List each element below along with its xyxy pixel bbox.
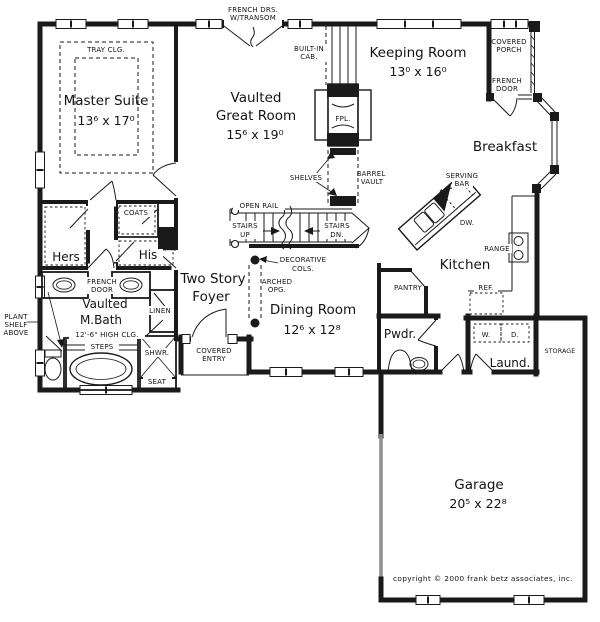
covered-entry-label-2: ENTRY [202, 355, 226, 363]
room-label-his: His [139, 248, 158, 262]
washer-label: W. [482, 331, 491, 339]
steps-label: STEPS [91, 343, 114, 351]
porch-french-door-label: FRENCH [492, 77, 522, 85]
room-label-kitchen: Kitchen [440, 257, 491, 273]
coats-label: COATS [124, 209, 149, 217]
shelf-lower [330, 196, 356, 206]
room-label-great-room-2: Great Room [216, 108, 296, 124]
room-label-mbath: Vaulted [82, 297, 127, 311]
room-label-powder: Pwdr. [384, 327, 416, 341]
newel-post [232, 241, 239, 248]
copyright-text: copyright © 2000 frank betz associates, … [393, 574, 573, 583]
built-in-cab-label-2: CAB. [300, 53, 318, 61]
shelf-upper [330, 148, 356, 155]
stairs-down-label: STAIRS [324, 222, 350, 230]
dishwasher-label: DW. [460, 219, 474, 227]
room-label-garage: Garage [454, 477, 503, 493]
serving-bar-label: SERVING [446, 172, 478, 180]
decorative-cols-label: DECORATIVE [280, 256, 327, 264]
decorative-cols-label-2: COLS. [292, 265, 314, 273]
shower-label: SHWR. [145, 349, 169, 357]
fireplace-label: FPL. [335, 115, 350, 123]
room-dims-dining: 12⁶ x 12⁸ [283, 322, 340, 337]
arched-opening-label-2: OPG. [268, 286, 286, 294]
room-label-master-suite: Master Suite [64, 93, 149, 109]
covered-porch-label-2: PORCH [496, 46, 521, 54]
stairs-up-label-2: UP [240, 231, 250, 239]
tray-ceiling-label: TRAY CLG. [86, 46, 125, 54]
barrel-vault-label-2: VAULT [361, 178, 384, 186]
bath-french-door-label: FRENCH [87, 278, 117, 286]
room-label-breakfast: Breakfast [473, 139, 537, 155]
floor-plan-page: FRENCH DRS. W/TRANSOM TRAY CLG. Master S… [0, 0, 600, 622]
room-label-laundry: Laund. [490, 356, 531, 370]
french-drs-label: FRENCH DRS. [228, 6, 278, 14]
shelves-label: SHELVES [290, 174, 323, 182]
room-label-foyer-2: Foyer [192, 289, 230, 305]
room-label-mbath-2: M.Bath [80, 313, 122, 327]
room-label-keeping-room: Keeping Room [370, 45, 467, 61]
room-label-storage: STORAGE [545, 348, 576, 355]
room-dims-great-room: 15⁶ x 19⁰ [226, 127, 283, 142]
covered-entry-label: COVERED [196, 347, 232, 355]
range-label: RANGE [484, 245, 509, 253]
mbath-ceiling-label: 12'-6" HIGH CLG. [75, 331, 138, 339]
french-drs-label-2: W/TRANSOM [230, 14, 276, 22]
refrigerator-label: REF. [478, 284, 493, 292]
room-label-hers: Hers [52, 250, 80, 264]
bath-french-door-label-2: DOOR [91, 286, 113, 294]
stairs-down-label-2: DN. [330, 231, 343, 239]
linen-label: LINEN [149, 307, 171, 315]
pantry-label: PANTRY [394, 284, 422, 292]
seat-label: SEAT [148, 378, 167, 386]
stairs-up-label: STAIRS [232, 222, 258, 230]
plant-shelf-label: PLANT [4, 313, 28, 321]
covered-porch-label: COVERED [491, 38, 527, 46]
room-dims-master-suite: 13⁶ x 17⁰ [77, 113, 134, 128]
barrel-vault-label: BARREL [357, 170, 386, 178]
room-dims-garage: 20⁵ x 22⁸ [449, 496, 506, 511]
open-rail-label: OPEN RAIL [240, 202, 279, 210]
porch-french-door-label-2: DOOR [496, 85, 518, 93]
room-label-great-room: Vaulted [231, 90, 282, 106]
room-label-dining: Dining Room [270, 302, 356, 318]
room-dims-keeping-room: 13⁰ x 16⁰ [389, 64, 446, 79]
arched-opening-label: ARCHED [262, 278, 292, 286]
serving-bar-label-2: BAR [454, 180, 469, 188]
dryer-label: D. [511, 331, 519, 339]
floor-plan-drawing: FRENCH DRS. W/TRANSOM TRAY CLG. Master S… [0, 0, 600, 622]
built-in-cab-label: BUILT-IN [294, 45, 324, 53]
plant-shelf-label-3: ABOVE [3, 329, 28, 337]
foyer-wall-pier [158, 227, 178, 250]
plant-shelf-label-2: SHELF [4, 321, 27, 329]
room-label-foyer: Two Story [179, 271, 245, 287]
